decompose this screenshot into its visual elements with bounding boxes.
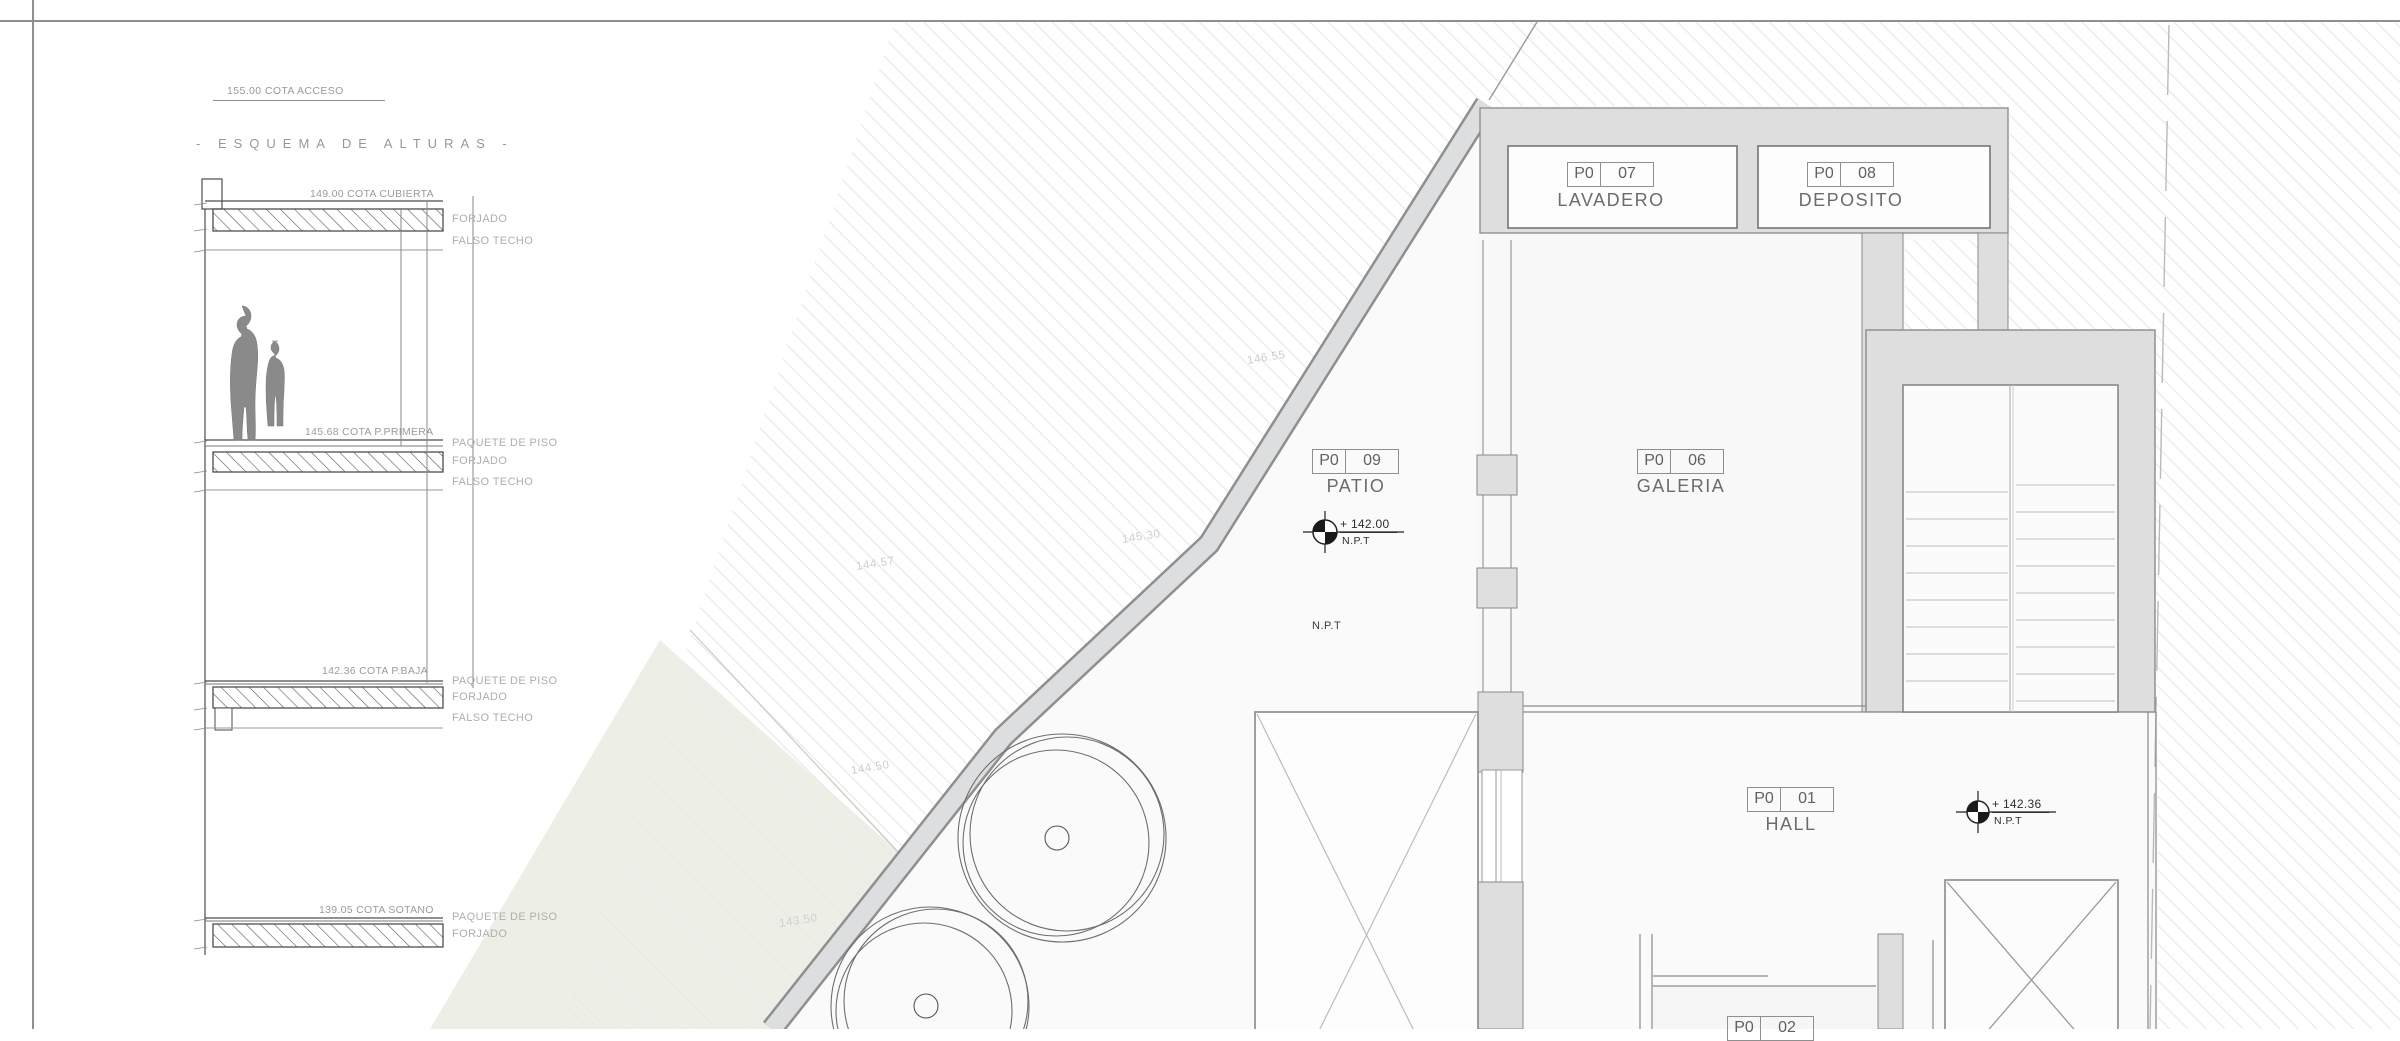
cota-sotano-label: 139.05 COTA SOTANO: [319, 904, 434, 916]
section-title: - ESQUEMA DE ALTURAS -: [196, 136, 514, 151]
room-name-galeria: GALERIA: [1621, 476, 1741, 497]
level-marker-patio-datum: N.P.T: [1342, 535, 1370, 547]
room-tag-galeria: P0 06: [1637, 449, 1724, 474]
section-drawing: [194, 179, 473, 955]
room-name-hall: HALL: [1731, 814, 1851, 835]
room-deposito: [1758, 146, 1990, 228]
room-tag-hall: P0 01: [1747, 787, 1834, 812]
npt-annotation: N.P.T: [1312, 620, 1341, 632]
room-tag-number: 01: [1781, 788, 1833, 811]
galeria-zone: [1478, 233, 1905, 715]
level-marker-hall-datum: N.P.T: [1994, 815, 2022, 827]
room-tag-code: P0: [1313, 450, 1346, 473]
room-tag-number: 09: [1346, 450, 1398, 473]
shaft-cross: [1945, 880, 2118, 1029]
person-child-silhouette: [266, 341, 284, 426]
room-tag-number: 06: [1671, 450, 1723, 473]
layer-falso-techo-label: FALSO TECHO: [452, 235, 533, 247]
hall-east-wall: [1878, 934, 1903, 1029]
room-tag-code: P0: [1568, 163, 1601, 186]
room-name-deposito: DEPOSITO: [1791, 190, 1911, 211]
layer-forjado-label: FORJADO: [452, 928, 507, 940]
room-tag-number: 07: [1601, 163, 1653, 186]
room-tag-code: P0: [1808, 163, 1841, 186]
wall-stub: [1978, 233, 2008, 332]
stair-block: [1866, 330, 2155, 712]
cross-braced-room: [1255, 712, 1478, 1029]
room-tag-number: 08: [1841, 163, 1893, 186]
layer-forjado-label: FORJADO: [452, 691, 507, 703]
layer-forjado-label: FORJADO: [452, 213, 507, 225]
layer-forjado-label: FORJADO: [452, 455, 507, 467]
cota-baja-label: 142.36 COTA P.BAJA: [322, 665, 428, 677]
access-level-note: 155.00 COTA ACCESO: [213, 85, 385, 101]
cota-cubierta-label: 149.00 COTA CUBIERTA: [310, 188, 434, 200]
room-tag-deposito: P0 08: [1807, 162, 1894, 187]
hall-west-wall: [1478, 692, 1523, 772]
layer-paquete-label: PAQUETE DE PISO: [452, 437, 557, 449]
room-lavadero: [1508, 146, 1737, 228]
person-adult-silhouette: [230, 306, 257, 440]
drawing-sheet: { "sheet": { "access_note": "155.00 COTA…: [0, 0, 2400, 1029]
room-tag-code: P0: [1748, 788, 1781, 811]
layer-falso-techo-label: FALSO TECHO: [452, 712, 533, 724]
room-name-patio: PATIO: [1296, 476, 1416, 497]
window: [1482, 770, 1522, 882]
wall-pier: [1477, 568, 1517, 608]
level-marker-patio-value: + 142.00: [1340, 517, 1397, 533]
room-tag-code: P0: [1638, 450, 1671, 473]
room-tag-lavadero: P0 07: [1567, 162, 1654, 187]
sheet-border-left: [32, 0, 34, 1029]
sheet-border-top: [0, 20, 2400, 22]
wall-pier: [1477, 455, 1517, 495]
level-marker-hall-value: + 142.36: [1992, 797, 2049, 813]
plan-canvas: [0, 0, 2400, 1029]
layer-falso-techo-label: FALSO TECHO: [452, 476, 533, 488]
layer-paquete-label: PAQUETE DE PISO: [452, 675, 557, 687]
layer-paquete-label: PAQUETE DE PISO: [452, 911, 557, 923]
room-tag-patio: P0 09: [1312, 449, 1399, 474]
room-name-lavadero: LAVADERO: [1551, 190, 1671, 211]
hall-west-wall: [1478, 882, 1523, 1029]
cota-primera-label: 145.68 COTA P.PRIMERA: [305, 426, 433, 438]
